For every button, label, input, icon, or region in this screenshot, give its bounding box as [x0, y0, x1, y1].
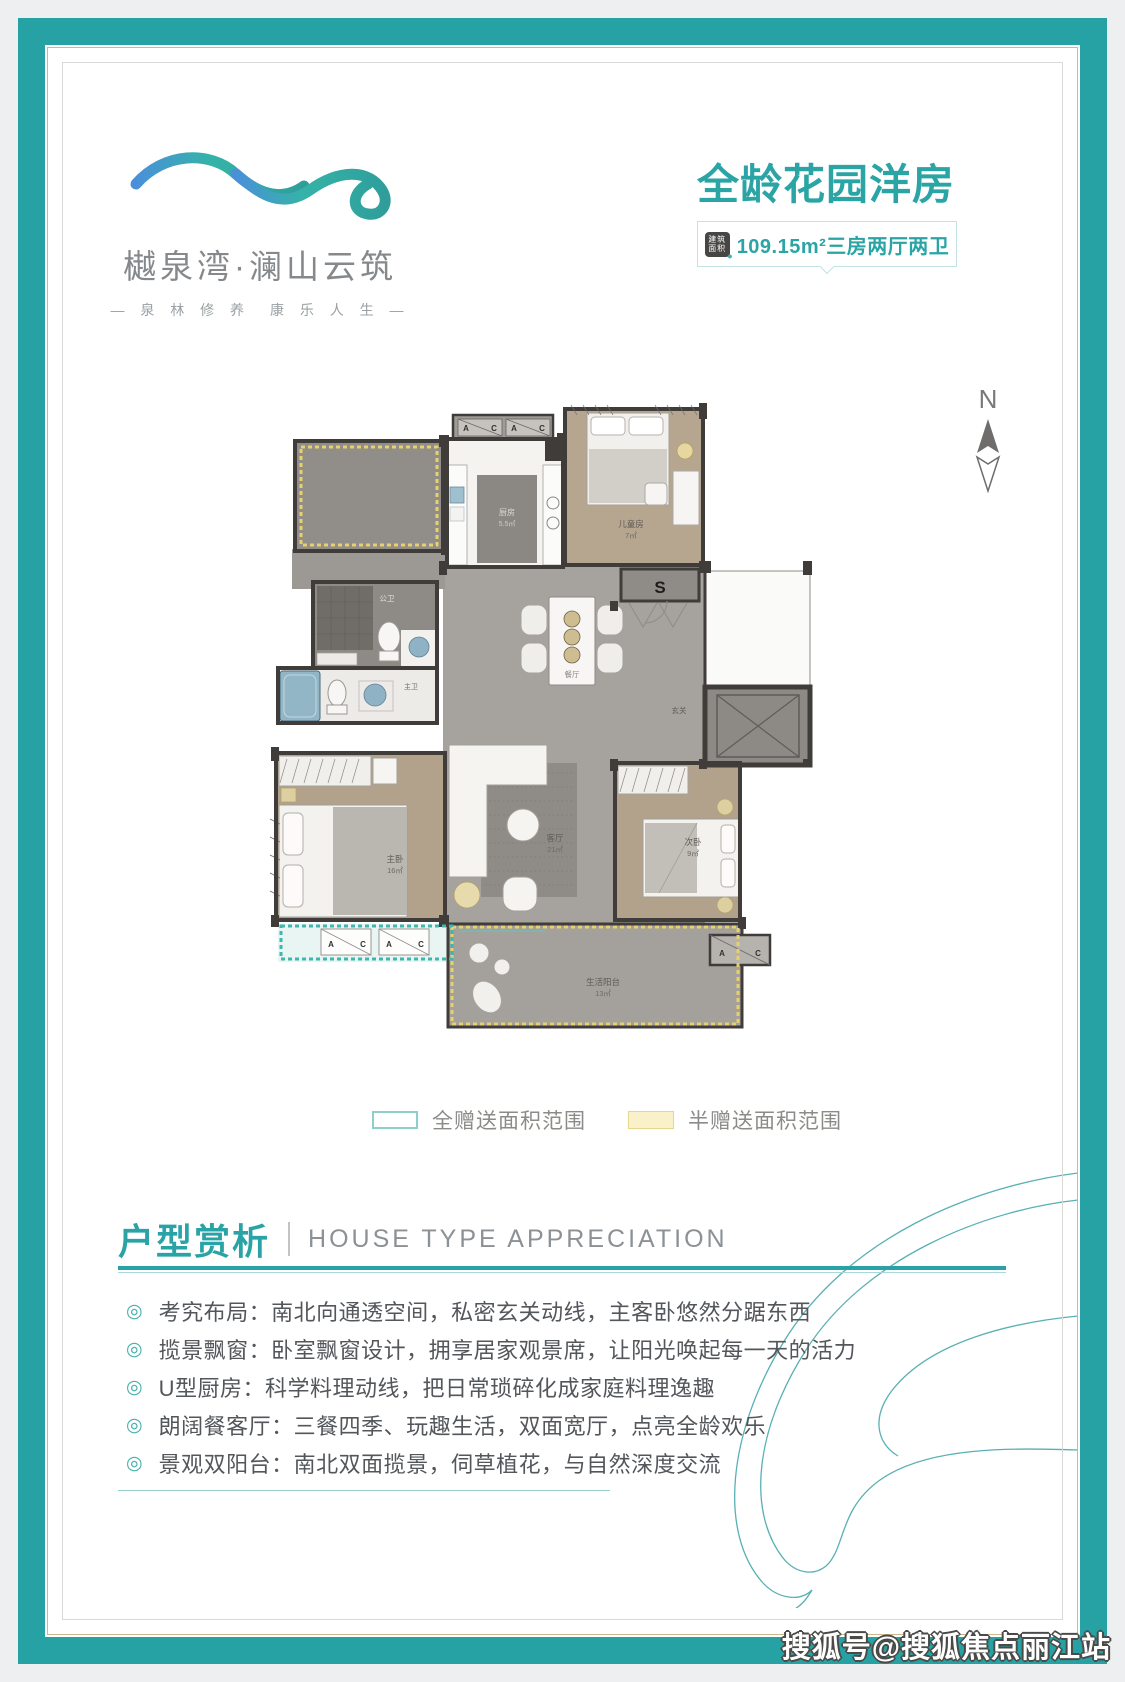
room-area: 5.5㎡ [499, 520, 516, 528]
wave-logo-icon [124, 146, 396, 232]
gear-icon: ● [727, 252, 732, 261]
toilet [328, 680, 346, 706]
stair-label: S [654, 578, 665, 597]
side-table [454, 882, 480, 908]
ac-letter: C [755, 949, 761, 958]
desk [673, 471, 699, 525]
floorplan: A C A C A C A C A C [255, 375, 820, 1040]
bathtub [280, 671, 320, 721]
feature-list: ◎ 考究布局：南北向通透空间，私密玄关动线，主客卧悠然分踞东西 ◎ 揽景飘窗：卧… [126, 1292, 746, 1482]
room-label: 公卫 [380, 594, 395, 603]
brand-tagline: — 泉 林 修 养 康 乐 人 生 — [105, 300, 415, 320]
ac-letter: A [719, 949, 725, 958]
room-label: 儿童房 [618, 519, 644, 529]
room-area: 21㎡ [547, 845, 563, 854]
section-header: 户型赏析 HOUSE TYPE APPRECIATION [118, 1213, 728, 1265]
wardrobe [618, 766, 688, 794]
page-title: 全龄花园洋房 [697, 160, 957, 210]
room-area: 7㎡ [625, 531, 637, 540]
compass-needle-icon [973, 417, 1003, 493]
brand-name: 樾泉湾·澜山云筑 [105, 240, 415, 288]
full-gift-swatch [372, 1111, 418, 1129]
poster-page: 樾泉湾·澜山云筑 — 泉 林 修 养 康 乐 人 生 — 全龄花园洋房 建筑面积… [0, 0, 1125, 1682]
watermark: 搜狐号@搜狐焦点丽江站 [782, 1624, 1111, 1666]
chair [521, 605, 547, 635]
building-area-icon: 建筑面积 ● [705, 232, 730, 257]
room-living [449, 745, 577, 911]
toilet [378, 622, 400, 652]
ac-letter: C [491, 424, 497, 433]
chair [597, 643, 623, 673]
ac-box-bottom-right: A C [710, 935, 770, 965]
room-label: 主卫 [404, 682, 418, 691]
decorative-wave-curves [688, 1138, 1078, 1608]
ac-letter: A [463, 424, 469, 433]
double-circle-bullet-icon: ◎ [126, 1454, 143, 1473]
north-label: N [962, 384, 1014, 415]
ac-letter: C [360, 940, 366, 949]
section-title-cn: 户型赏析 [118, 1213, 270, 1265]
section-divider [288, 1222, 290, 1256]
room-label: 厨房 [499, 507, 515, 517]
list-item: ◎ 考究布局：南北向通透空间，私密玄关动线，主客卧悠然分踞东西 [126, 1292, 746, 1330]
room-master [270, 756, 407, 917]
list-item: ◎ 揽景飘窗：卧室飘窗设计，拥享居家观景席，让阳光唤起每一天的活力 [126, 1330, 746, 1368]
north-compass: N [962, 384, 1014, 493]
room-label: 玄关 [672, 705, 687, 715]
armchair [503, 877, 537, 911]
section-underline [118, 1266, 1006, 1273]
sink [409, 637, 429, 657]
double-circle-bullet-icon: ◎ [126, 1340, 143, 1359]
room-label: 生活阳台 [586, 977, 620, 987]
bottom-rule [118, 1490, 610, 1491]
legend-full-gift: 全赠送面积范围 [372, 1105, 586, 1135]
legend-half-gift: 半赠送面积范围 [628, 1105, 842, 1135]
room-area: 13㎡ [595, 989, 611, 998]
legend-label: 半赠送面积范围 [688, 1105, 842, 1135]
brand-logo: 樾泉湾·澜山云筑 — 泉 林 修 养 康 乐 人 生 — [105, 146, 415, 320]
room-area: 16㎡ [387, 866, 403, 875]
double-circle-bullet-icon: ◎ [126, 1378, 143, 1397]
ac-letter: A [386, 940, 392, 949]
double-circle-bullet-icon: ◎ [126, 1302, 143, 1321]
ac-letter: A [328, 940, 334, 949]
area-badge-text: 109.15m²三房两厅两卫 [737, 230, 950, 259]
room-label: 次卧 [684, 837, 702, 847]
chair [521, 643, 547, 673]
sink [364, 684, 386, 706]
list-item: ◎ 景观双阳台：南北双面揽景，伺草植花，与自然深度交流 [126, 1444, 746, 1482]
room-area: 9㎡ [687, 849, 699, 858]
list-item: ◎ U型厨房：科学料理动线，把日常琐碎化成家庭料理逸趣 [126, 1368, 746, 1406]
room-label: 主卧 [386, 854, 404, 864]
ac-letter: C [418, 940, 424, 949]
section-title-en: HOUSE TYPE APPRECIATION [308, 1225, 728, 1254]
ac-letter: A [511, 424, 517, 433]
kitchen-island [477, 475, 537, 563]
double-circle-bullet-icon: ◎ [126, 1416, 143, 1435]
legend-label: 全赠送面积范围 [432, 1105, 586, 1135]
room-label: 餐厅 [565, 670, 580, 679]
ac-letter: C [539, 424, 545, 433]
kitchen-sink [450, 487, 464, 503]
round-chair [507, 809, 539, 841]
room-label: 客厅 [546, 833, 564, 843]
gift-legend: 全赠送面积范围 半赠送面积范围 [372, 1105, 842, 1135]
list-item: ◎ 朗阔餐客厅：三餐四季、玩趣生活，双面宽厅，点亮全龄欢乐 [126, 1406, 746, 1444]
area-badge: 建筑面积 ● 109.15m²三房两厅两卫 [697, 221, 957, 267]
half-gift-swatch [628, 1111, 674, 1129]
